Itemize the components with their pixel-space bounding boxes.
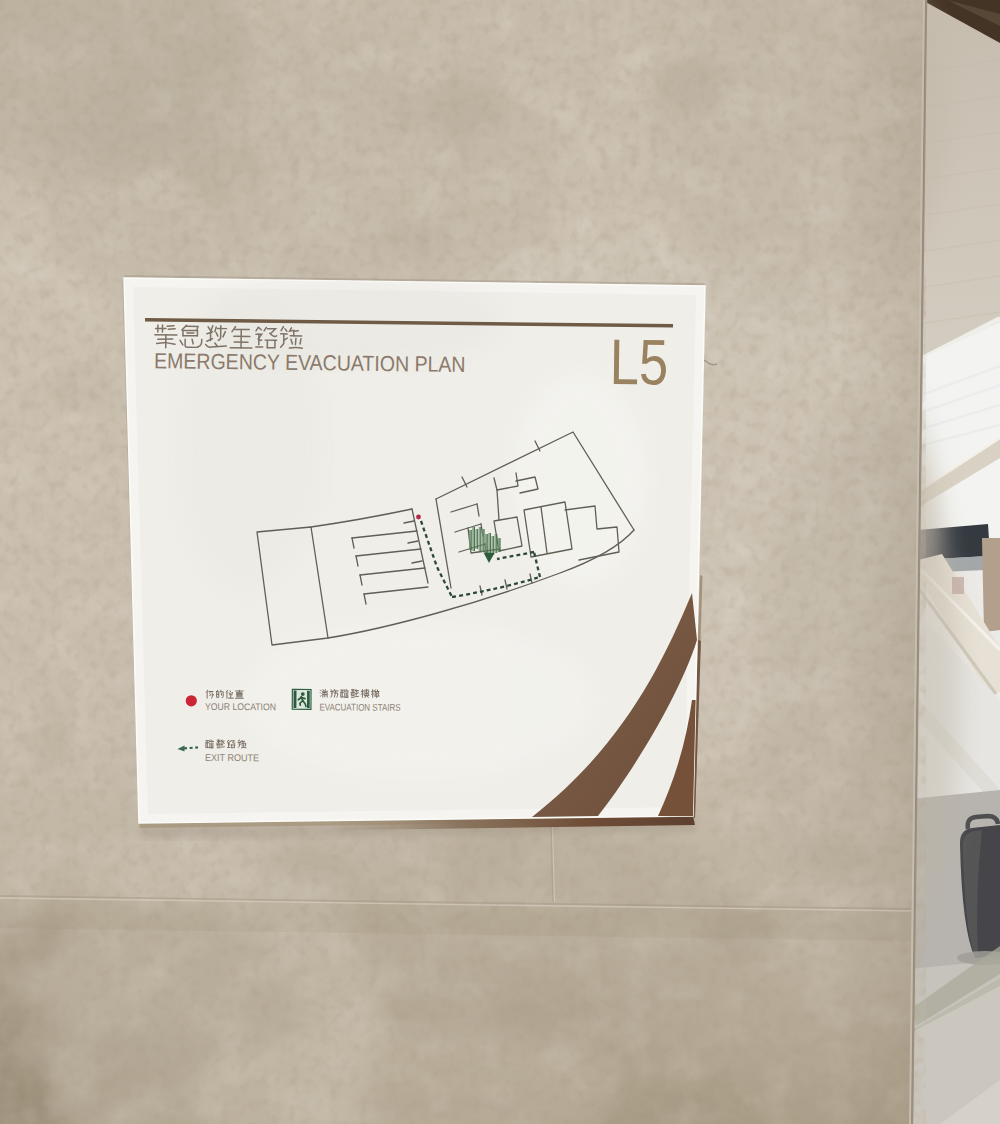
svg-text:EXIT ROUTE: EXIT ROUTE <box>205 752 259 763</box>
svg-text:YOUR LOCATION: YOUR LOCATION <box>205 701 276 712</box>
svg-text:L5: L5 <box>609 326 668 399</box>
svg-text:EMERGENCY EVACUATION PLAN: EMERGENCY EVACUATION PLAN <box>154 348 466 377</box>
svg-text:EVACUATION STAIRS: EVACUATION STAIRS <box>319 702 400 713</box>
